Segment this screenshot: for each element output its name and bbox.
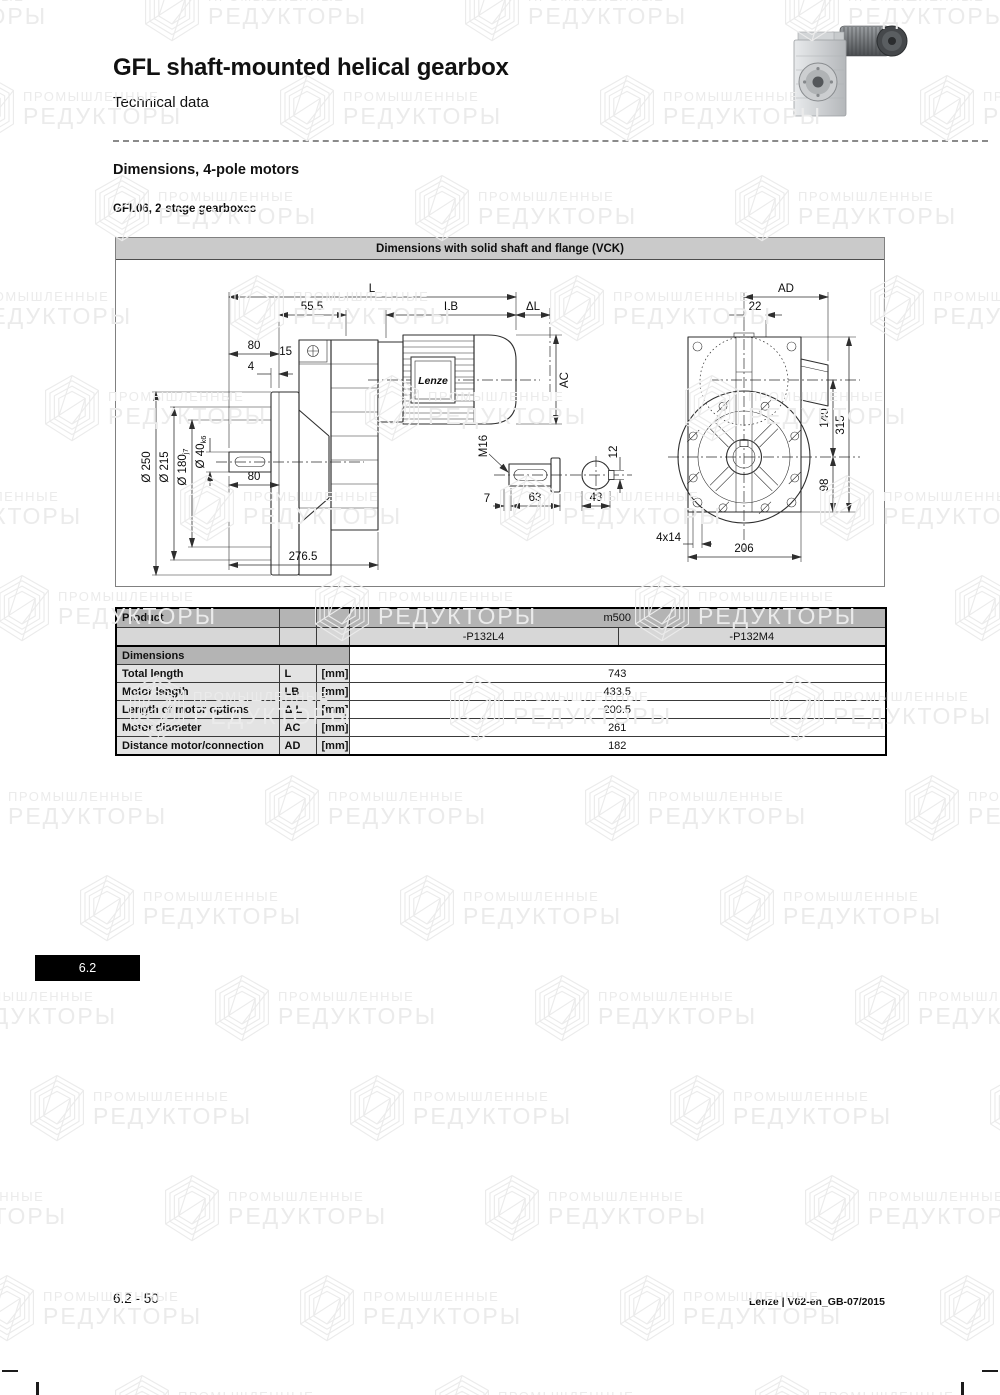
dim-label-63: 63 xyxy=(529,492,542,504)
watermark-stamp: ПРОМЫШЛЕННЫЕ РЕДУКТОРЫ xyxy=(75,872,395,946)
technical-drawing-panel: Dimensions with solid shaft and flange (… xyxy=(115,237,885,587)
hexagon-logo-icon xyxy=(430,1372,494,1395)
watermark-line1: ПРОМЫШЛЕННЫЕ xyxy=(798,190,957,204)
watermark-line2: РЕДУКТОРЫ xyxy=(918,1004,1000,1028)
watermark-line2: РЕДУКТОРЫ xyxy=(478,204,637,228)
catalog-page: ПРОМЫШЛЕННЫЕ РЕДУКТОРЫ ПРОМЫШЛЕННЫЕ РЕДУ… xyxy=(0,0,1000,1395)
hexagon-logo-icon xyxy=(160,1172,224,1246)
watermark-stamp: ПРОМЫШЛЕННЫЕ РЕДУКТОРЫ xyxy=(0,972,210,1046)
product-label: Product xyxy=(116,608,279,628)
watermark-stamp: ПРОМЫШЛЕННЫЕ РЕДУКТОРЫ xyxy=(295,1272,615,1346)
watermark-line1: ПРОМЫШЛЕННЫЕ xyxy=(0,1190,67,1204)
dim-label-M16: M16 xyxy=(478,435,490,457)
watermark-line2: РЕДУКТОРЫ xyxy=(43,1304,202,1328)
dim-label-7: 7 xyxy=(484,493,490,505)
table-row: Distance motor/connection AD [mm] 182 xyxy=(116,737,886,756)
watermark-line1: ПРОМЫШЛЕННЫЕ xyxy=(983,90,1000,104)
watermark-stamp: ПРОМЫШЛЕННЫЕ РЕДУКТОРЫ xyxy=(460,0,780,46)
watermark-line2: РЕДУКТОРЫ xyxy=(0,1004,117,1028)
watermark-line1: ПРОМЫШЛЕННЫЕ xyxy=(698,590,857,604)
dim-label-206: 206 xyxy=(734,543,753,555)
watermark-line2: РЕДУКТОРЫ xyxy=(983,104,1000,128)
crop-mark xyxy=(36,1382,39,1395)
watermark-line2: РЕДУКТОРЫ xyxy=(548,1204,707,1228)
watermark-line1: ПРОМЫШЛЕННЫЕ xyxy=(648,790,807,804)
row-symbol: AD xyxy=(279,737,316,756)
dim-label-55-5: 55.5 xyxy=(301,301,323,313)
watermark-stamp: ПРОМЫШЛЕННЫЕ РЕДУКТОРЫ xyxy=(935,1272,1000,1346)
hexagon-logo-icon xyxy=(395,872,459,946)
footer-document-reference: Lenze | V02-en_GB-07/2015 xyxy=(749,1296,885,1308)
watermark-line2: РЕДУКТОРЫ xyxy=(363,1304,522,1328)
row-value: 200.5 xyxy=(349,701,886,719)
hexagon-logo-icon xyxy=(985,1072,1000,1146)
dim-label-276-5: 276.5 xyxy=(289,551,318,563)
dim-label-LB: LB xyxy=(444,301,458,313)
dim-label-dia40: Ø 40k6 xyxy=(195,436,208,469)
watermark-stamp: ПРОМЫШЛЕННЫЕ РЕДУКТОРЫ xyxy=(865,272,1000,346)
row-value: 182 xyxy=(349,737,886,756)
watermark-line1: ПРОМЫШЛЕННЫЕ xyxy=(883,490,1000,504)
watermark-stamp: ПРОМЫШЛЕННЫЕ РЕДУКТОРЫ xyxy=(160,1172,480,1246)
hexagon-logo-icon xyxy=(275,72,339,146)
watermark-line1: ПРОМЫШЛЕННЫЕ xyxy=(478,190,637,204)
hexagon-logo-icon xyxy=(0,572,54,646)
watermark-line1: ПРОМЫШЛЕННЫЕ xyxy=(0,990,117,1004)
watermark-line2: РЕДУКТОРЫ xyxy=(143,904,302,928)
hexagon-logo-icon xyxy=(25,1072,89,1146)
watermark-line2: РЕДУКТОРЫ xyxy=(598,1004,757,1028)
watermark-line1: ПРОМЫШЛЕННЫЕ xyxy=(933,290,1000,304)
table-row: Length of motor options Δ L [mm] 200.5 xyxy=(116,701,886,719)
hexagon-logo-icon xyxy=(665,1072,729,1146)
watermark-line1: ПРОМЫШЛЕННЫЕ xyxy=(918,990,1000,1004)
watermark-line2: РЕДУКТОРЫ xyxy=(528,4,687,28)
hexagon-logo-icon xyxy=(210,972,274,1046)
watermark-line1: ПРОМЫШЛЕННЫЕ xyxy=(8,790,167,804)
watermark-line2: РЕДУКТОРЫ xyxy=(0,4,47,28)
row-symbol: L xyxy=(279,665,316,683)
gearbox-photo-illustration xyxy=(788,12,908,120)
dim-label-4: 4 xyxy=(248,361,255,373)
variant-2: -P132M4 xyxy=(618,628,886,647)
watermark-line1: ПРОМЫШЛЕННЫЕ xyxy=(733,1090,892,1104)
dim-label-140: 140 xyxy=(819,408,831,427)
watermark-line1: ПРОМЫШЛЕННЫЕ xyxy=(598,990,757,1004)
watermark-line1: ПРОМЫШЛЕННЫЕ xyxy=(363,1290,522,1304)
hexagon-logo-icon xyxy=(0,772,4,846)
hexagon-logo-icon xyxy=(0,72,19,146)
hexagon-logo-icon xyxy=(345,1072,409,1146)
watermark-line2: РЕДУКТОРЫ xyxy=(328,804,487,828)
gearbox-product-photo xyxy=(788,12,908,125)
section-heading: Dimensions, 4-pole motors xyxy=(113,162,299,178)
row-value: 261 xyxy=(349,719,886,737)
watermark-stamp: ПРОМЫШЛЕННЫЕ РЕДУКТОРЫ xyxy=(665,1072,985,1146)
watermark-line1: ПРОМЫШЛЕННЫЕ xyxy=(0,290,132,304)
table-row-product: Product m500 xyxy=(116,608,886,628)
watermark-line2: РЕДУКТОРЫ xyxy=(0,1204,67,1228)
hexagon-logo-icon xyxy=(295,1272,359,1346)
dim-label-dia180: Ø 180j7 xyxy=(177,448,190,485)
row-symbol: Δ L xyxy=(279,701,316,719)
row-value: 433.5 xyxy=(349,683,886,701)
section-subheading: GFL06, 2-stage gearboxes xyxy=(113,203,256,215)
hexagon-logo-icon xyxy=(915,72,979,146)
watermark-stamp: ПРОМЫШЛЕННЫЕ РЕДУКТОРЫ xyxy=(275,72,595,146)
watermark-line1: ПРОМЫШЛЕННЫЕ xyxy=(228,1190,387,1204)
watermark-line1: ПРОМЫШЛЕННЫЕ xyxy=(58,590,217,604)
watermark-stamp: ПРОМЫШЛЕННЫЕ РЕДУКТОРЫ xyxy=(580,772,900,846)
watermark-stamp: ПРОМЫШЛЕННЫЕ РЕДУКТОРЫ xyxy=(0,772,260,846)
watermark-stamp: ПРОМЫШЛЕННЫЕ РЕДУКТОРЫ xyxy=(345,1072,665,1146)
table-row-section: Dimensions xyxy=(116,646,886,665)
watermark-line1: ПРОМЫШЛЕННЫЕ xyxy=(0,0,47,4)
watermark-stamp: ПРОМЫШЛЕННЫЕ РЕДУКТОРЫ xyxy=(260,772,580,846)
watermark-stamp: ПРОМЫШЛЕННЫЕ РЕДУКТОРЫ xyxy=(25,1072,345,1146)
crop-mark xyxy=(961,1382,964,1395)
dimensions-table: Product m500 -P132L4 -P132M4 Dimensions … xyxy=(115,607,887,756)
watermark-stamp: ПРОМЫШЛЕННЫЕ РЕДУКТОРЫ xyxy=(915,72,1000,146)
watermark-line1: ПРОМЫШЛЕННЫЕ xyxy=(528,0,687,4)
dim-label-43: 43 xyxy=(590,492,603,504)
hexagon-logo-icon xyxy=(750,1372,814,1395)
watermark-line1: ПРОМЫШЛЕННЫЕ xyxy=(818,1390,977,1395)
watermark-stamp: ПРОМЫШЛЕННЫЕ РЕДУКТОРЫ xyxy=(715,872,1000,946)
row-label: Motor length xyxy=(116,683,279,701)
drawing-title: Dimensions with solid shaft and flange (… xyxy=(116,238,884,260)
watermark-stamp: ПРОМЫШЛЕННЫЕ РЕДУКТОРЫ xyxy=(395,872,715,946)
chapter-tab: 6.2 xyxy=(35,955,140,981)
hexagon-logo-icon xyxy=(260,772,324,846)
row-symbol: LB xyxy=(279,683,316,701)
hexagon-logo-icon xyxy=(140,0,204,46)
watermark-line2: РЕДУКТОРЫ xyxy=(208,4,367,28)
dim-label-AC: AC xyxy=(559,372,571,388)
hexagon-logo-icon xyxy=(480,1172,544,1246)
watermark-line1: ПРОМЫШЛЕННЫЕ xyxy=(968,790,1000,804)
watermark-line2: РЕДУКТОРЫ xyxy=(883,504,1000,528)
watermark-line2: РЕДУКТОРЫ xyxy=(0,304,132,328)
technical-drawing: Lenze L 55.5 LB ΔL 80 4 15 Ø xyxy=(116,260,884,586)
hexagon-logo-icon xyxy=(460,0,524,46)
hexagon-logo-icon xyxy=(850,972,914,1046)
watermark-stamp: ПРОМЫШЛЕННЫЕ РЕДУКТОРЫ xyxy=(900,772,1000,846)
dim-label-12: 12 xyxy=(608,446,620,459)
variant-1: -P132L4 xyxy=(349,628,618,647)
watermark-line1: ПРОМЫШЛЕННЫЕ xyxy=(413,1090,572,1104)
crop-mark xyxy=(982,1370,998,1372)
dim-label-22: 22 xyxy=(749,301,762,313)
watermark-line1: ПРОМЫШЛЕННЫЕ xyxy=(208,0,367,4)
dim-label-315: 315 xyxy=(835,415,847,434)
hexagon-logo-icon xyxy=(800,1172,864,1246)
row-unit: [mm] xyxy=(316,701,349,719)
row-label: Total length xyxy=(116,665,279,683)
page-title: GFL shaft-mounted helical gearbox xyxy=(113,54,509,82)
watermark-line2: РЕДУКТОРЫ xyxy=(228,1204,387,1228)
dim-label-AD: AD xyxy=(778,283,794,295)
dim-label-L: L xyxy=(369,283,376,295)
watermark-line2: РЕДУКТОРЫ xyxy=(93,1104,252,1128)
row-unit: [mm] xyxy=(316,737,349,756)
table-row-variants: -P132L4 -P132M4 xyxy=(116,628,886,647)
side-view: Lenze L 55.5 LB ΔL 80 4 15 Ø xyxy=(141,283,571,575)
watermark-line2: РЕДУКТОРЫ xyxy=(968,804,1000,828)
watermark-stamp: ПРОМЫШЛЕННЫЕ РЕДУКТОРЫ xyxy=(950,572,1000,646)
watermark-line2: РЕДУКТОРЫ xyxy=(343,104,502,128)
watermark-stamp: ПРОМЫШЛЕННЫЕ РЕДУКТОРЫ xyxy=(0,1172,160,1246)
watermark-line2: РЕДУКТОРЫ xyxy=(278,1004,437,1028)
hexagon-logo-icon xyxy=(950,572,1000,646)
watermark-line1: ПРОМЫШЛЕННЫЕ xyxy=(848,0,1000,4)
watermark-line1: ПРОМЫШЛЕННЫЕ xyxy=(0,490,82,504)
row-value: 743 xyxy=(349,665,886,683)
watermark-stamp: ПРОМЫШЛЕННЫЕ РЕДУКТОРЫ xyxy=(850,972,1000,1046)
watermark-line1: ПРОМЫШЛЕННЫЕ xyxy=(548,1190,707,1204)
row-symbol: AC xyxy=(279,719,316,737)
hexagon-logo-icon xyxy=(595,72,659,146)
watermark-line2: РЕДУКТОРЫ xyxy=(648,804,807,828)
table-row: Motor diameter AC [mm] 261 xyxy=(116,719,886,737)
crop-mark xyxy=(2,1370,18,1372)
watermark-line1: ПРОМЫШЛЕННЫЕ xyxy=(178,1390,337,1395)
watermark-line1: ПРОМЫШЛЕННЫЕ xyxy=(498,1390,657,1395)
row-unit: [mm] xyxy=(316,665,349,683)
watermark-stamp: ПРОМЫШЛЕННЫЕ РЕДУКТОРЫ xyxy=(985,1072,1000,1146)
watermark-line1: ПРОМЫШЛЕННЫЕ xyxy=(783,890,942,904)
watermark-stamp: ПРОМЫШЛЕННЫЕ РЕДУКТОРЫ xyxy=(430,1372,750,1395)
product-value: m500 xyxy=(349,608,886,628)
watermark-line1: ПРОМЫШЛЕННЫЕ xyxy=(343,90,502,104)
footer-page-number: 6.2 - 50 xyxy=(113,1291,159,1306)
hexagon-logo-icon xyxy=(410,172,474,246)
row-label: Distance motor/connection xyxy=(116,737,279,756)
watermark-line2: РЕДУКТОРЫ xyxy=(413,1104,572,1128)
watermark-stamp: ПРОМЫШЛЕННЫЕ РЕДУКТОРЫ xyxy=(0,0,140,46)
watermark-line2: РЕДУКТОРЫ xyxy=(463,904,622,928)
shaft-detail-view: M16 7 63 43 12 xyxy=(478,435,632,511)
watermark-line1: ПРОМЫШЛЕННЫЕ xyxy=(93,1090,252,1104)
watermark-line2: РЕДУКТОРЫ xyxy=(868,1204,1000,1228)
motor-brand-label: Lenze xyxy=(418,375,448,387)
dim-label-80-shaft: 80 xyxy=(248,471,261,483)
front-view: AD 22 140 315 98 4x14 206 xyxy=(656,283,860,562)
hexagon-logo-icon xyxy=(0,1272,39,1346)
hexagon-logo-icon xyxy=(75,872,139,946)
row-label: Motor diameter xyxy=(116,719,279,737)
hexagon-logo-icon xyxy=(900,772,964,846)
dim-label-98: 98 xyxy=(819,479,831,492)
hexagon-logo-icon xyxy=(530,972,594,1046)
watermark-line1: ПРОМЫШЛЕННЫЕ xyxy=(378,590,537,604)
watermark-stamp: ПРОМЫШЛЕННЫЕ РЕДУКТОРЫ xyxy=(140,0,460,46)
row-unit: [mm] xyxy=(316,719,349,737)
watermark-stamp: ПРОМЫШЛЕННЫЕ РЕДУКТОРЫ xyxy=(800,1172,1000,1246)
row-unit: [mm] xyxy=(316,683,349,701)
dashed-divider xyxy=(113,140,988,142)
hexagon-logo-icon xyxy=(715,872,779,946)
table-row: Motor length LB [mm] 433.5 xyxy=(116,683,886,701)
watermark-line1: ПРОМЫШЛЕННЫЕ xyxy=(463,890,622,904)
hexagon-logo-icon xyxy=(730,172,794,246)
hexagon-logo-icon xyxy=(615,1272,679,1346)
hexagon-logo-icon xyxy=(935,1272,999,1346)
watermark-line2: РЕДУКТОРЫ xyxy=(8,804,167,828)
watermark-stamp: ПРОМЫШЛЕННЫЕ РЕДУКТОРЫ xyxy=(210,972,530,1046)
page-subtitle: Technical data xyxy=(113,94,209,111)
watermark-line2: РЕДУКТОРЫ xyxy=(798,204,957,228)
watermark-line2: РЕДУКТОРЫ xyxy=(733,1104,892,1128)
section-label: Dimensions xyxy=(116,646,349,665)
table-row: Total length L [mm] 743 xyxy=(116,665,886,683)
dim-label-dia215: Ø 215 xyxy=(159,451,171,482)
watermark-stamp: ПРОМЫШЛЕННЫЕ РЕДУКТОРЫ xyxy=(410,172,730,246)
dim-label-delta-L: ΔL xyxy=(526,301,541,313)
watermark-line2: РЕДУКТОРЫ xyxy=(0,504,82,528)
watermark-line2: РЕДУКТОРЫ xyxy=(783,904,942,928)
watermark-line1: ПРОМЫШЛЕННЫЕ xyxy=(328,790,487,804)
dim-label-80-top: 80 xyxy=(248,340,261,352)
watermark-stamp: ПРОМЫШЛЕННЫЕ РЕДУКТОРЫ xyxy=(0,1272,295,1346)
watermark-stamp: ПРОМЫШЛЕННЫЕ РЕДУКТОРЫ xyxy=(110,1372,430,1395)
watermark-line1: ПРОМЫШЛЕННЫЕ xyxy=(143,890,302,904)
watermark-line1: ПРОМЫШЛЕННЫЕ xyxy=(158,190,317,204)
hexagon-logo-icon xyxy=(40,372,104,446)
watermark-line2: РЕДУКТОРЫ xyxy=(933,304,1000,328)
watermark-stamp: ПРОМЫШЛЕННЫЕ РЕДУКТОРЫ xyxy=(480,1172,800,1246)
watermark-stamp: ПРОМЫШЛЕННЫЕ РЕДУКТОРЫ xyxy=(730,172,1000,246)
dim-label-dia250: Ø 250 xyxy=(141,451,153,482)
row-label: Length of motor options xyxy=(116,701,279,719)
dim-label-15: 15 xyxy=(279,346,292,358)
watermark-stamp: ПРОМЫШЛЕННЫЕ РЕДУКТОРЫ xyxy=(615,1272,935,1346)
watermark-stamp: ПРОМЫШЛЕННЫЕ РЕДУКТОРЫ xyxy=(530,972,850,1046)
hexagon-logo-icon xyxy=(110,1372,174,1395)
dim-label-4x14: 4x14 xyxy=(656,532,682,544)
watermark-line1: ПРОМЫШЛЕННЫЕ xyxy=(868,1190,1000,1204)
watermark-line1: ПРОМЫШЛЕННЫЕ xyxy=(278,990,437,1004)
hexagon-logo-icon xyxy=(580,772,644,846)
